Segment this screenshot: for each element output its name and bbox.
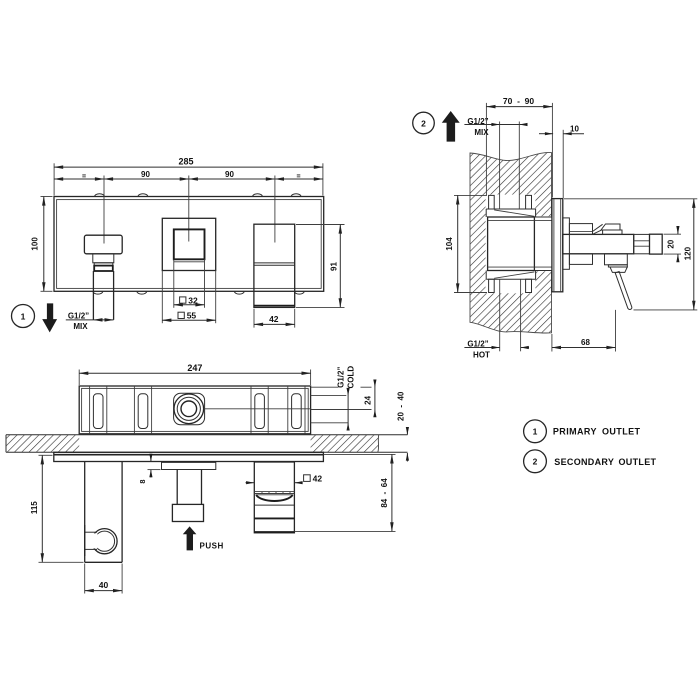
svg-text:68: 68 bbox=[581, 338, 590, 347]
svg-text:42: 42 bbox=[269, 314, 279, 324]
svg-text:32: 32 bbox=[188, 295, 198, 305]
svg-text:285: 285 bbox=[178, 157, 193, 167]
svg-text:PUSH: PUSH bbox=[200, 541, 224, 550]
svg-text:247: 247 bbox=[187, 363, 202, 373]
svg-text:20: 20 bbox=[666, 239, 675, 248]
svg-text:115: 115 bbox=[30, 501, 39, 514]
svg-text:90: 90 bbox=[141, 170, 150, 179]
svg-text:55: 55 bbox=[187, 311, 197, 321]
svg-text:OUTLET: OUTLET bbox=[619, 457, 657, 467]
svg-text:=: = bbox=[82, 173, 86, 180]
svg-text:70 - 90: 70 - 90 bbox=[503, 96, 534, 106]
svg-text:G1/2”: G1/2” bbox=[337, 367, 346, 388]
svg-text:10: 10 bbox=[570, 125, 579, 134]
svg-text:42: 42 bbox=[313, 474, 323, 484]
svg-text:HOT: HOT bbox=[473, 351, 490, 360]
svg-text:G1/2”: G1/2” bbox=[467, 339, 488, 348]
svg-text:1: 1 bbox=[21, 311, 26, 321]
svg-text:24: 24 bbox=[364, 395, 373, 404]
svg-text:84 - 64: 84 - 64 bbox=[380, 478, 389, 508]
svg-text:MIX: MIX bbox=[73, 322, 88, 331]
svg-text:2: 2 bbox=[533, 457, 538, 467]
svg-text:=: = bbox=[297, 173, 301, 180]
svg-text:91: 91 bbox=[329, 262, 338, 271]
svg-text:40: 40 bbox=[99, 580, 109, 590]
svg-text:8: 8 bbox=[138, 479, 147, 483]
svg-text:MIX: MIX bbox=[474, 128, 489, 137]
svg-text:120: 120 bbox=[683, 246, 692, 260]
svg-text:SECONDARY: SECONDARY bbox=[554, 457, 614, 467]
svg-text:100: 100 bbox=[31, 237, 40, 251]
svg-text:20 - 40: 20 - 40 bbox=[396, 391, 405, 421]
svg-text:OUTLET: OUTLET bbox=[602, 427, 640, 437]
svg-text:104: 104 bbox=[445, 237, 454, 251]
svg-text:PRIMARY: PRIMARY bbox=[553, 427, 597, 437]
svg-text:90: 90 bbox=[225, 170, 234, 179]
svg-text:G1/2”: G1/2” bbox=[68, 311, 89, 320]
svg-text:2: 2 bbox=[421, 118, 426, 128]
svg-text:COLD: COLD bbox=[347, 366, 356, 389]
svg-text:1: 1 bbox=[533, 427, 538, 437]
